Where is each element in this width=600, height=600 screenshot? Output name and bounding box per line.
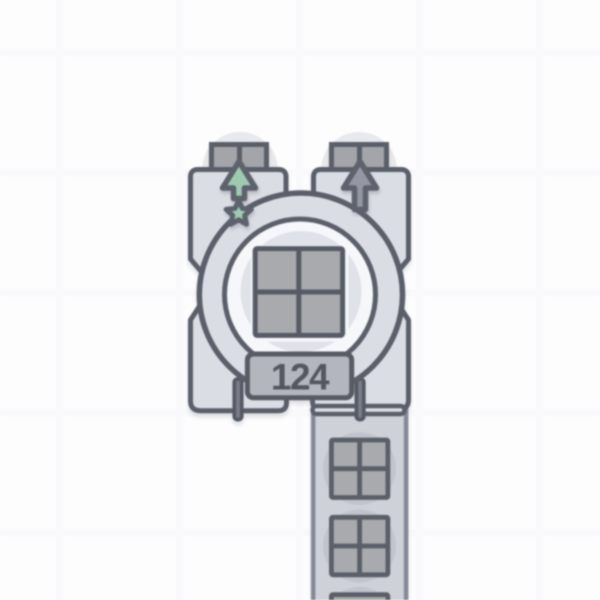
svg-text:124: 124 [271, 357, 330, 398]
